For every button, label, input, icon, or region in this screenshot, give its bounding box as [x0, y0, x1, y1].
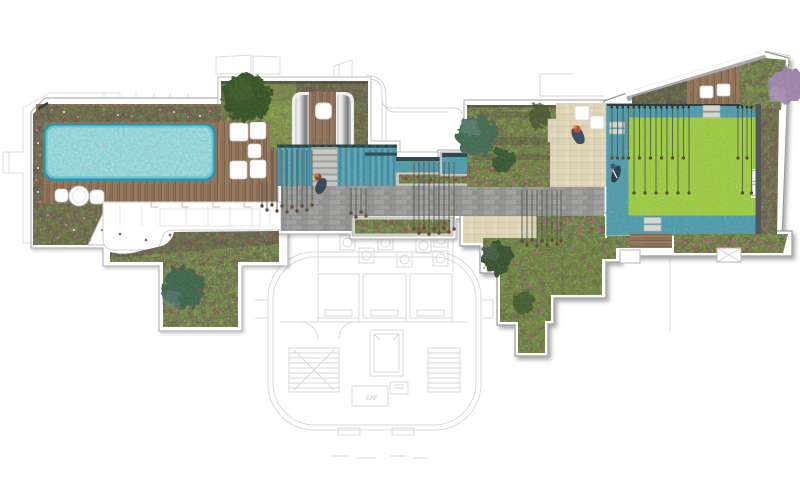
- svg-text:EAF: EAF: [366, 396, 378, 402]
